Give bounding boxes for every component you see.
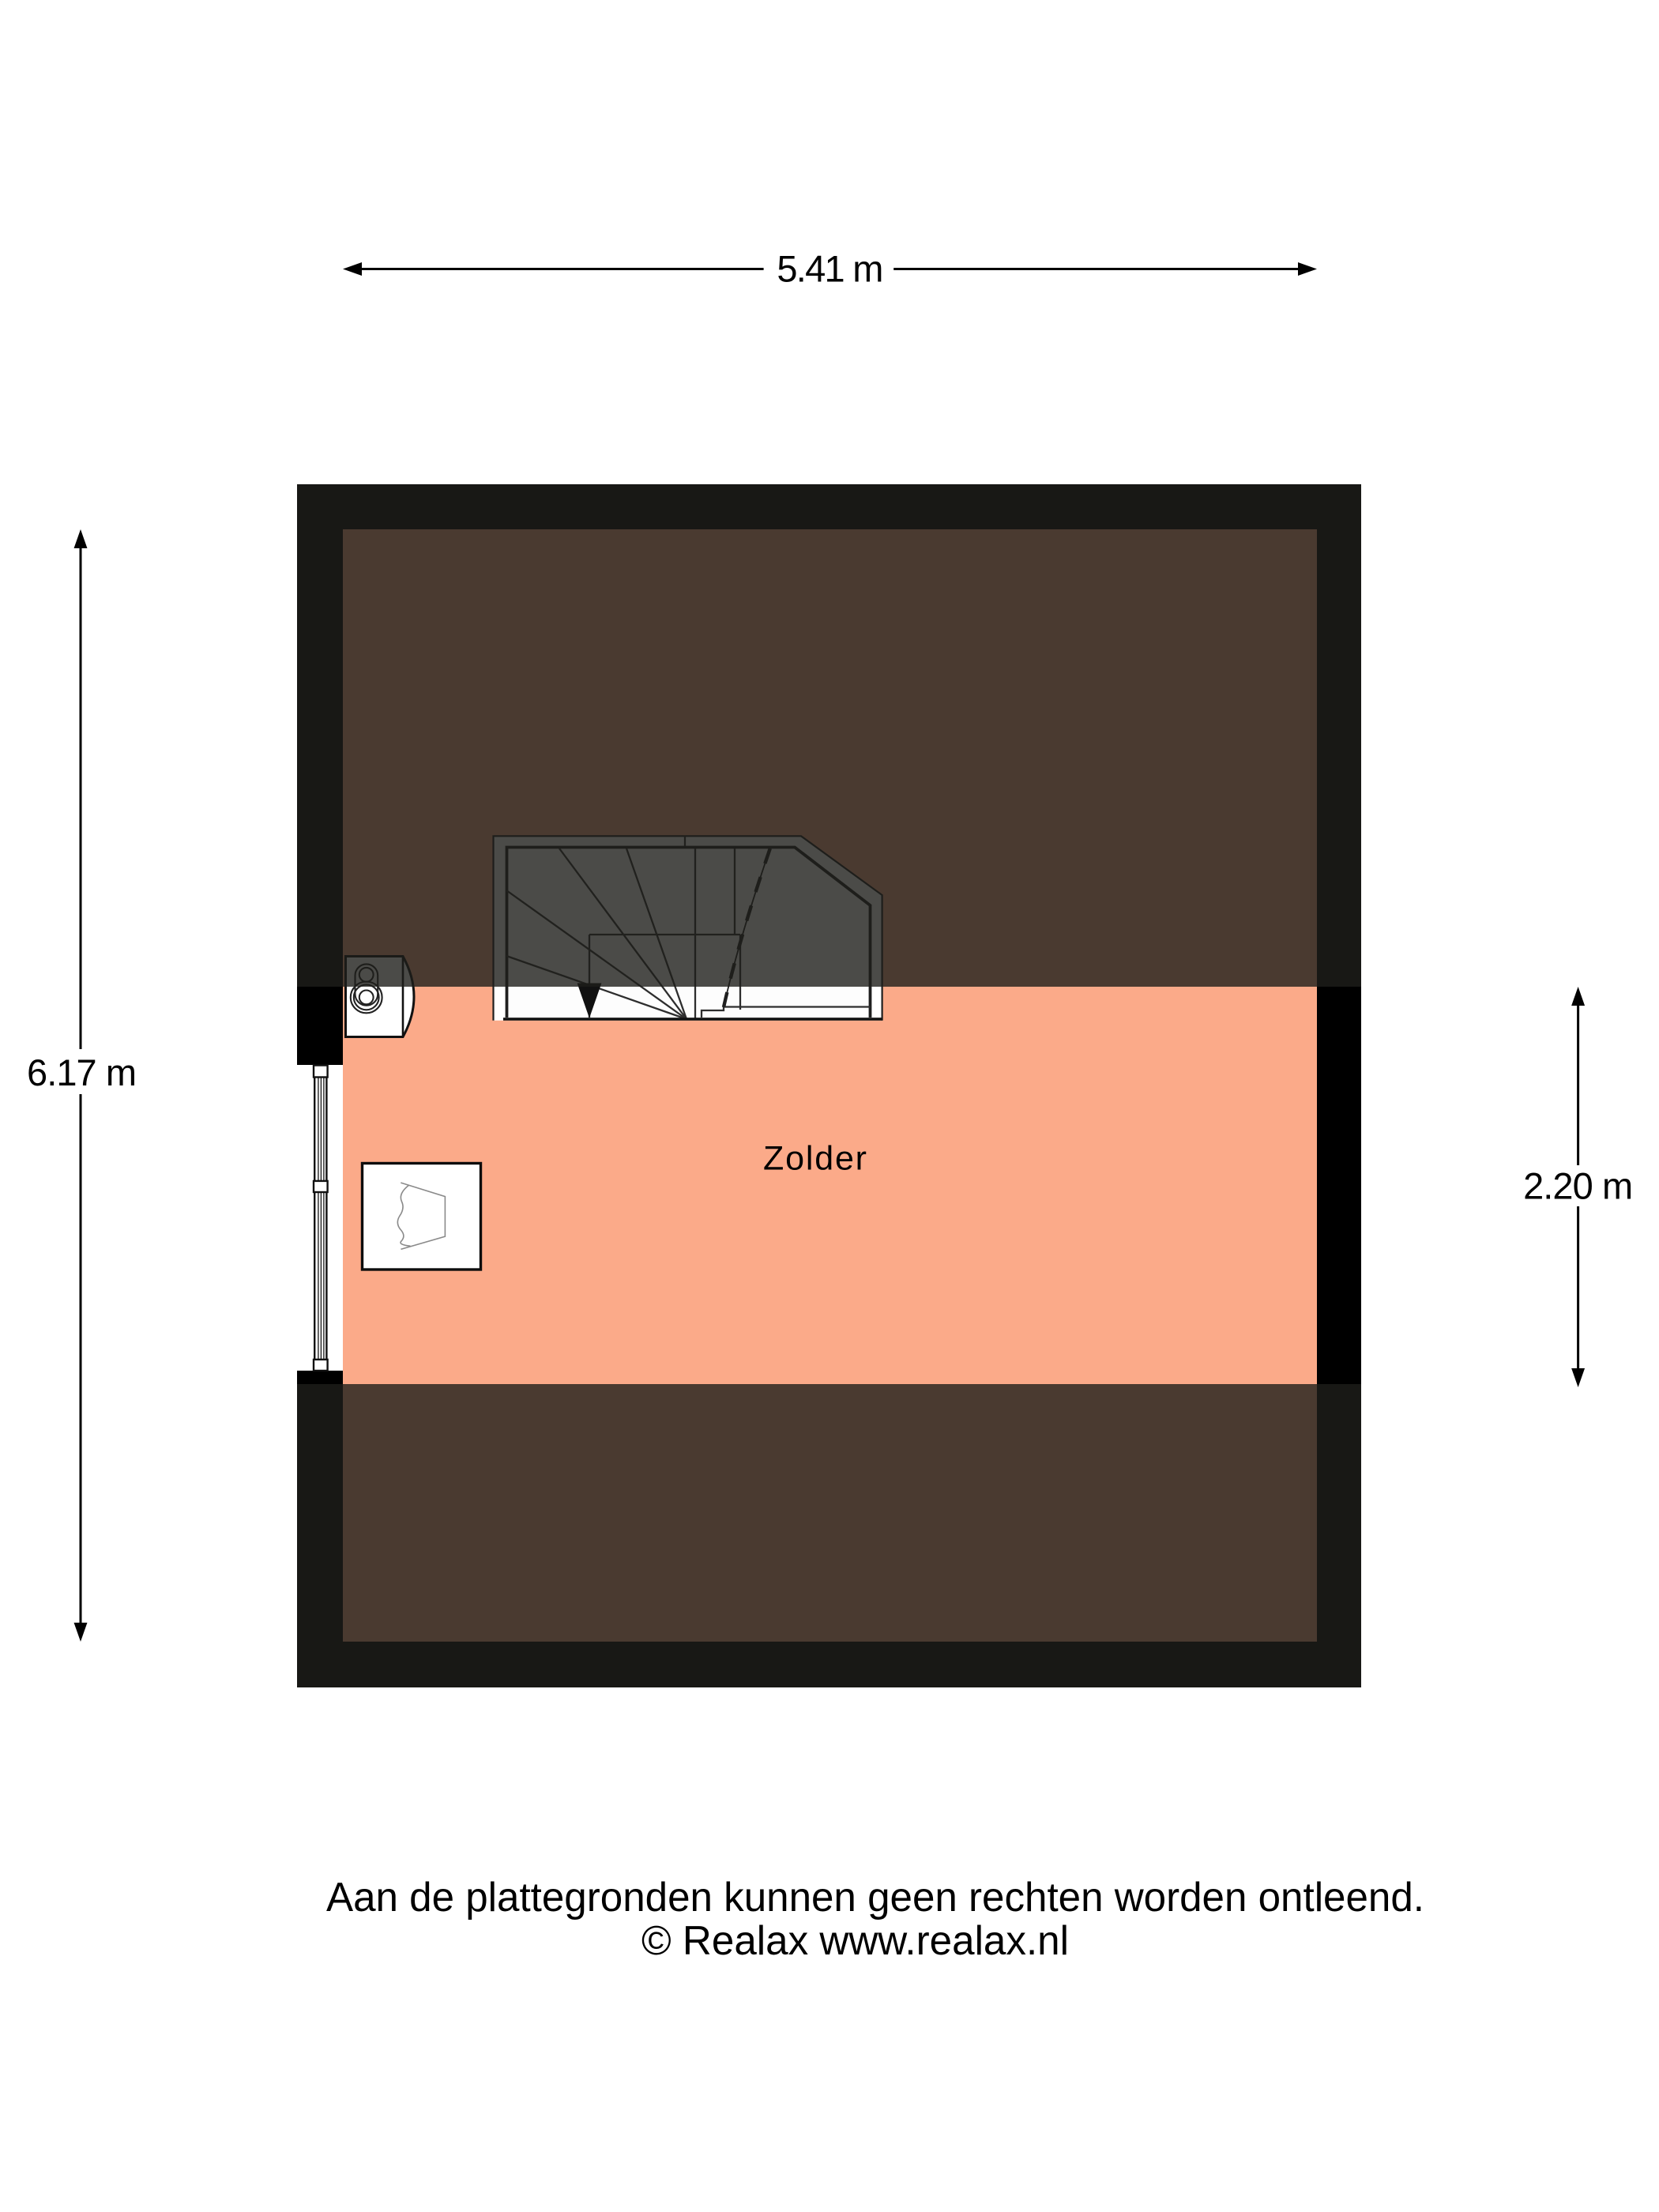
svg-text:2.20 m: 2.20 m	[1523, 1165, 1633, 1207]
svg-text:5.41 m: 5.41 m	[777, 248, 883, 290]
svg-text:© Realax www.realax.nl: © Realax www.realax.nl	[641, 1918, 1069, 1964]
svg-text:Aan de plattegronden kunnen ge: Aan de plattegronden kunnen geen rechten…	[326, 1875, 1424, 1920]
svg-text:6.17 m: 6.17 m	[27, 1051, 137, 1093]
svg-text:Zolder: Zolder	[763, 1140, 867, 1178]
